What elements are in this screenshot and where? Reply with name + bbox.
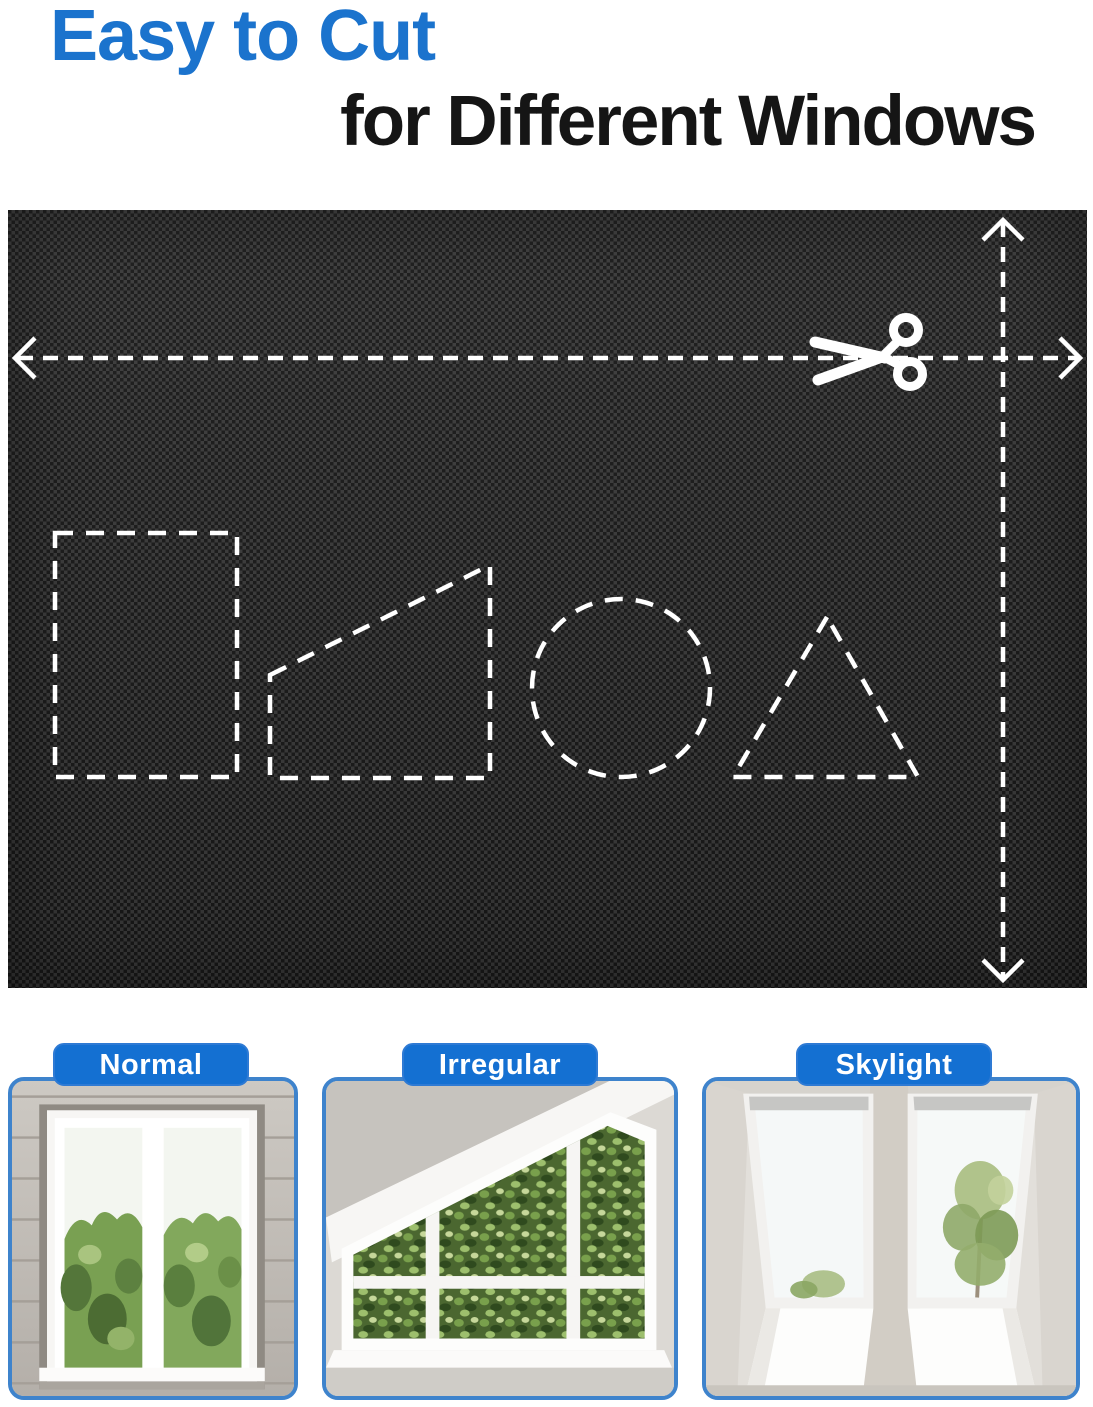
fabric-panel — [8, 210, 1087, 988]
card-skylight — [702, 1077, 1080, 1400]
label-normal: Normal — [53, 1043, 249, 1086]
cut-guide-graphic — [8, 210, 1087, 988]
product-infographic: Easy to Cut for Different Windows — [0, 0, 1093, 1407]
label-skylight: Skylight — [796, 1043, 992, 1086]
cut-shape-circle — [532, 599, 710, 777]
cut-shape-trapezoid — [270, 565, 490, 778]
normal-window-photo — [12, 1081, 294, 1396]
page-title: Easy to Cut — [50, 0, 435, 76]
cut-shape-triangle — [733, 617, 918, 777]
skylight-window-photo — [706, 1081, 1076, 1396]
card-irregular — [322, 1077, 678, 1400]
page-subtitle: for Different Windows — [340, 84, 1035, 160]
scissors-icon — [815, 318, 923, 387]
arrow-down-icon — [983, 960, 1023, 980]
irregular-window-photo — [326, 1081, 674, 1396]
label-irregular: Irregular — [402, 1043, 598, 1086]
cut-shape-rectangle — [55, 533, 237, 777]
card-normal — [8, 1077, 298, 1400]
